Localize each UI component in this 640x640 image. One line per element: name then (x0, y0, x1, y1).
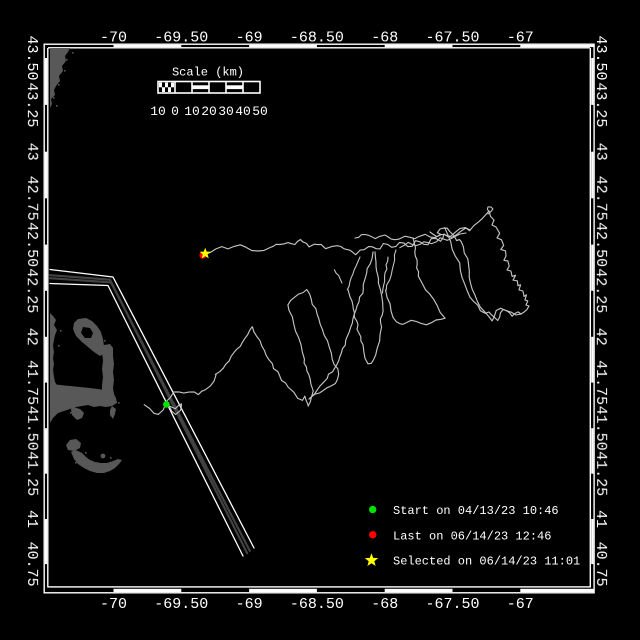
svg-text:41.25: 41.25 (592, 451, 609, 496)
svg-text:41.25: 41.25 (23, 451, 40, 496)
svg-text:-68.50: -68.50 (290, 29, 344, 46)
svg-text:-67: -67 (507, 29, 534, 46)
svg-text:42.25: 42.25 (23, 268, 40, 313)
svg-text:-67.50: -67.50 (425, 29, 479, 46)
svg-text:42.25: 42.25 (592, 268, 609, 313)
svg-text:40: 40 (235, 104, 251, 119)
svg-text:43: 43 (592, 143, 609, 161)
svg-text:40.75: 40.75 (23, 542, 40, 587)
svg-text:42.50: 42.50 (592, 222, 609, 267)
svg-text:-69.50: -69.50 (154, 29, 208, 46)
svg-text:43: 43 (23, 143, 40, 161)
svg-text:41.75: 41.75 (23, 360, 40, 405)
svg-text:Scale (km): Scale (km) (172, 66, 244, 80)
svg-text:10: 10 (184, 104, 200, 119)
svg-text:42.75: 42.75 (23, 176, 40, 221)
svg-text:Selected on 06/14/23 11:01: Selected on 06/14/23 11:01 (393, 555, 580, 569)
svg-text:41.50: 41.50 (592, 406, 609, 451)
svg-text:Start on 04/13/23 10:46: Start on 04/13/23 10:46 (393, 504, 559, 518)
svg-text:-69: -69 (236, 29, 263, 46)
svg-text:-67: -67 (507, 596, 534, 613)
svg-text:42: 42 (23, 328, 40, 346)
svg-text:0: 0 (171, 104, 179, 119)
svg-text:43.25: 43.25 (592, 82, 609, 127)
svg-text:43.50: 43.50 (23, 35, 40, 80)
svg-text:-68.50: -68.50 (290, 596, 344, 613)
svg-text:42: 42 (592, 328, 609, 346)
svg-text:20: 20 (201, 104, 217, 119)
svg-text:43.25: 43.25 (23, 82, 40, 127)
svg-text:40.75: 40.75 (592, 542, 609, 587)
svg-text:42.75: 42.75 (592, 176, 609, 221)
svg-text:41.50: 41.50 (23, 406, 40, 451)
svg-text:-68: -68 (371, 29, 398, 46)
svg-text:-68: -68 (371, 596, 398, 613)
svg-text:43.50: 43.50 (592, 35, 609, 80)
svg-text:-67.50: -67.50 (425, 596, 479, 613)
svg-text:-69: -69 (236, 596, 263, 613)
svg-text:30: 30 (218, 104, 234, 119)
svg-text:42.50: 42.50 (23, 222, 40, 267)
svg-text:41.75: 41.75 (592, 360, 609, 405)
svg-text:50: 50 (252, 104, 268, 119)
svg-text:-69.50: -69.50 (154, 596, 208, 613)
svg-text:-70: -70 (100, 29, 127, 46)
svg-text:41: 41 (592, 510, 609, 528)
svg-text:-70: -70 (100, 596, 127, 613)
svg-text:41: 41 (23, 510, 40, 528)
svg-text:Last on 06/14/23 12:46: Last on 06/14/23 12:46 (393, 529, 551, 543)
svg-text:10: 10 (150, 104, 166, 119)
